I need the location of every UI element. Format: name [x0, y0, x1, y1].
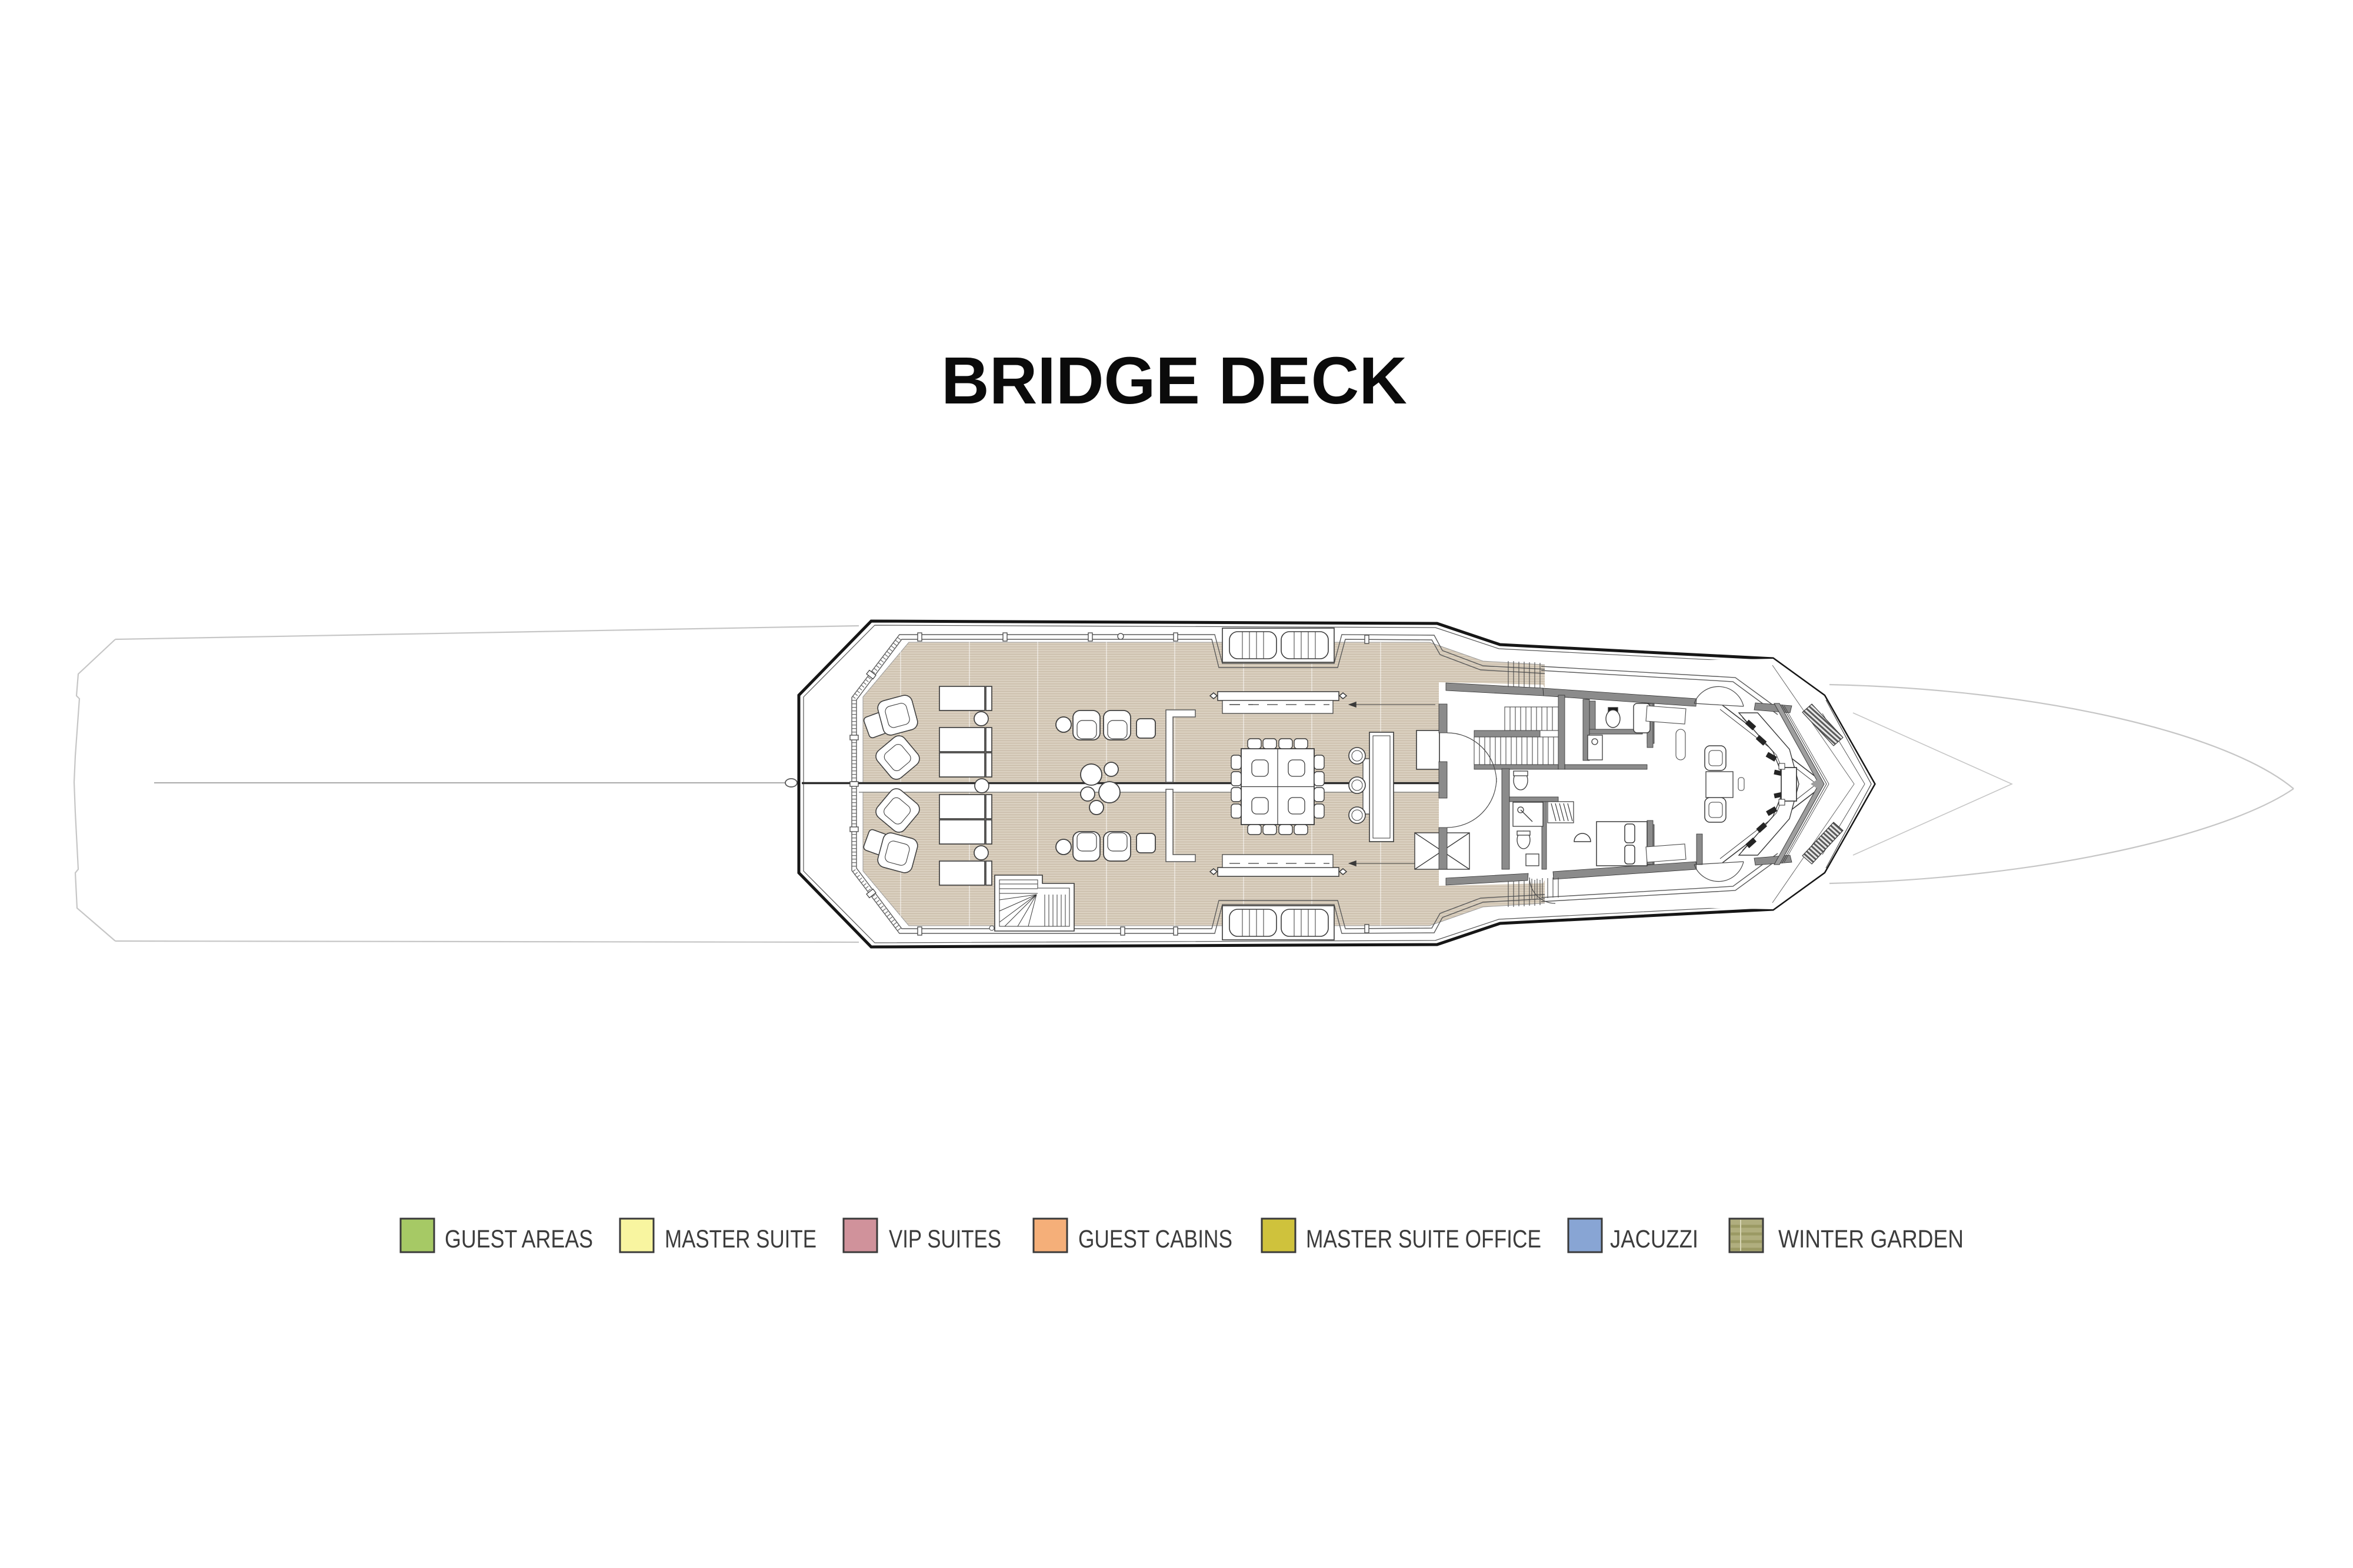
- svg-text:BRIDGE DECK: BRIDGE DECK: [941, 343, 1407, 418]
- svg-text:GUEST AREAS: GUEST AREAS: [445, 1225, 593, 1253]
- svg-text:VIP SUITES: VIP SUITES: [889, 1225, 1001, 1253]
- svg-text:GUEST CABINS: GUEST CABINS: [1078, 1225, 1232, 1253]
- svg-text:MASTER SUITE OFFICE: MASTER SUITE OFFICE: [1306, 1225, 1541, 1253]
- svg-text:WINTER GARDEN: WINTER GARDEN: [1778, 1225, 1964, 1253]
- svg-text:JACUZZI: JACUZZI: [1610, 1225, 1698, 1253]
- svg-text:MASTER SUITE: MASTER SUITE: [665, 1225, 816, 1253]
